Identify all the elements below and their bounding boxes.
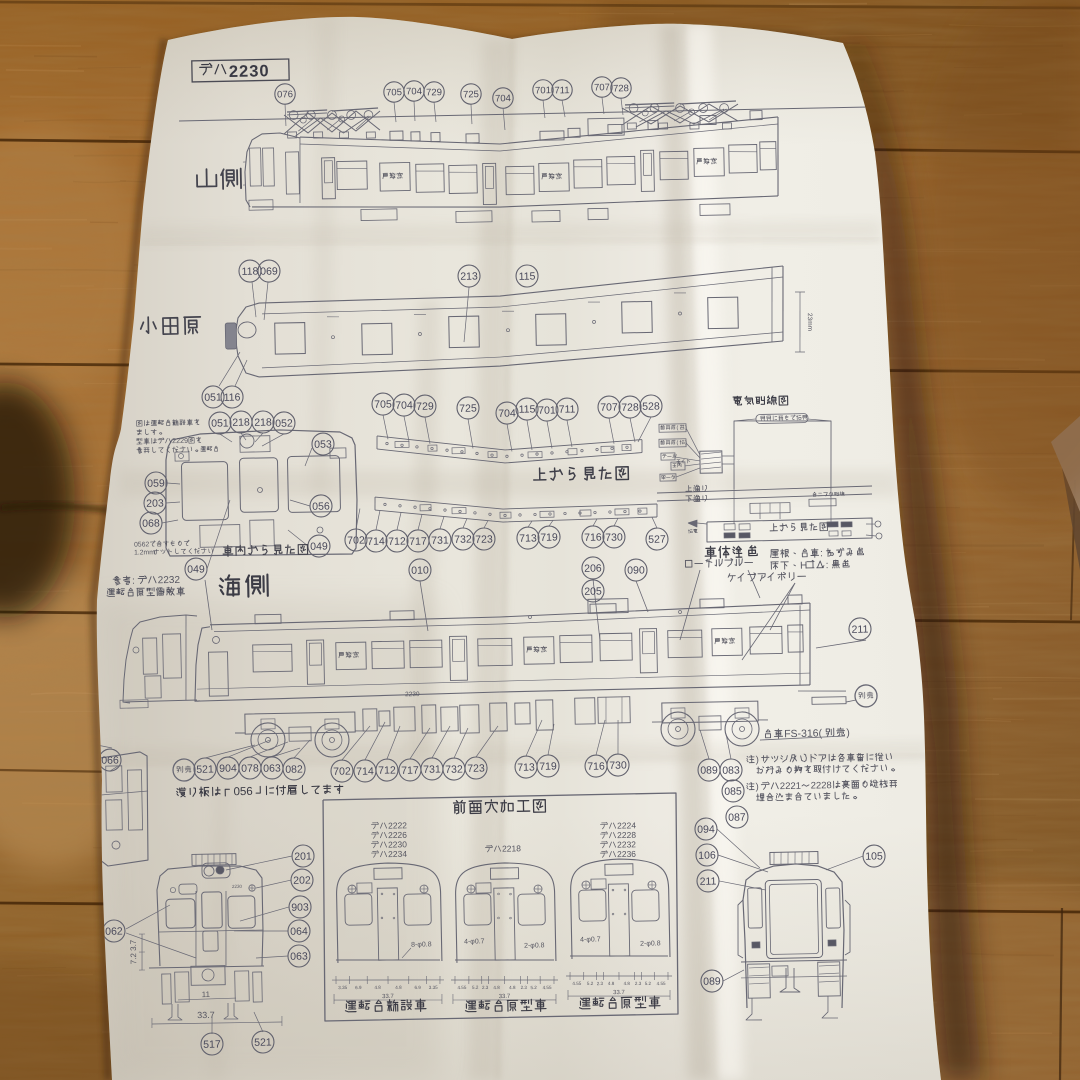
- svg-text:725: 725: [463, 89, 479, 100]
- svg-text:2230: 2230: [232, 884, 243, 889]
- svg-text:33.7: 33.7: [382, 994, 394, 1000]
- svg-text:711: 711: [554, 85, 569, 96]
- svg-text:2230: 2230: [405, 691, 420, 698]
- svg-text:5.2: 5.2: [587, 981, 594, 986]
- svg-text:704: 704: [406, 86, 422, 97]
- svg-text:H: H: [800, 560, 807, 571]
- svg-text:(: (: [676, 440, 678, 446]
- svg-text:2230: 2230: [229, 62, 270, 81]
- svg-text:2236: 2236: [617, 849, 636, 859]
- svg-text:5.2: 5.2: [472, 985, 479, 990]
- svg-text:728: 728: [621, 402, 639, 414]
- svg-text:4.8: 4.8: [624, 981, 631, 986]
- svg-text:2229: 2229: [172, 436, 188, 445]
- svg-text:202: 202: [293, 875, 311, 887]
- svg-text:729: 729: [426, 87, 442, 98]
- svg-text:): ): [846, 727, 850, 739]
- svg-text::: :: [132, 576, 135, 587]
- svg-text:076: 076: [277, 89, 293, 100]
- svg-text:2218: 2218: [502, 843, 521, 853]
- svg-text:211: 211: [700, 876, 717, 888]
- svg-text:2.3: 2.3: [482, 985, 489, 990]
- svg-text:059: 059: [147, 478, 165, 490]
- svg-text:713: 713: [519, 532, 537, 544]
- svg-text:6.9: 6.9: [414, 985, 421, 990]
- svg-text:730: 730: [609, 760, 627, 772]
- svg-text:707: 707: [600, 401, 618, 413]
- svg-text:069: 069: [260, 265, 278, 277]
- svg-text:732: 732: [445, 764, 463, 776]
- svg-text:2228: 2228: [811, 780, 832, 791]
- svg-text:714: 714: [367, 536, 385, 548]
- svg-text:4.55: 4.55: [572, 981, 581, 986]
- svg-text:702: 702: [333, 766, 351, 778]
- svg-text:713: 713: [517, 762, 535, 774]
- svg-text:): ): [755, 782, 758, 793]
- svg-text:201: 201: [294, 851, 312, 863]
- svg-text:2.3: 2.3: [635, 981, 642, 986]
- svg-text:4.8: 4.8: [509, 985, 516, 990]
- svg-text:4.8: 4.8: [493, 985, 500, 990]
- svg-text:4.8: 4.8: [395, 985, 402, 990]
- svg-text:729: 729: [416, 401, 434, 413]
- svg-text:115: 115: [519, 403, 536, 415]
- svg-text:218: 218: [232, 417, 250, 429]
- svg-text:): ): [756, 755, 759, 766]
- svg-text:051: 051: [204, 391, 222, 403]
- svg-text:051: 051: [211, 417, 229, 429]
- svg-text:719: 719: [540, 532, 558, 544]
- svg-text:2.3: 2.3: [597, 981, 604, 986]
- svg-text:064: 064: [290, 926, 308, 938]
- svg-text:213: 213: [460, 270, 478, 282]
- svg-text:094: 094: [697, 824, 715, 836]
- svg-text:903: 903: [291, 901, 309, 913]
- svg-text:527: 527: [648, 534, 666, 546]
- svg-text::: :: [820, 548, 823, 559]
- svg-text:056: 056: [312, 501, 330, 513]
- svg-text:(: (: [676, 425, 678, 431]
- svg-text:23mm: 23mm: [806, 313, 813, 331]
- svg-text:010: 010: [411, 564, 429, 576]
- svg-text:049: 049: [187, 563, 205, 575]
- svg-text:716: 716: [587, 760, 605, 772]
- svg-text:719: 719: [539, 761, 557, 773]
- svg-text:116: 116: [224, 392, 241, 404]
- svg-text:528: 528: [642, 401, 660, 413]
- svg-text:090: 090: [627, 564, 645, 576]
- svg-text:082: 082: [285, 763, 303, 775]
- svg-text:701: 701: [538, 404, 556, 416]
- svg-text:066: 066: [101, 754, 119, 766]
- svg-text:11: 11: [202, 990, 211, 999]
- svg-text:062: 062: [105, 926, 123, 938]
- svg-text:517: 517: [203, 1039, 221, 1051]
- svg-text:521: 521: [196, 764, 214, 776]
- svg-text:211: 211: [852, 623, 869, 635]
- svg-text:33.7: 33.7: [499, 994, 511, 1000]
- svg-text:105: 105: [865, 850, 883, 862]
- svg-text:704: 704: [495, 93, 511, 104]
- svg-text:089: 089: [700, 764, 718, 776]
- svg-text:4.8: 4.8: [374, 985, 381, 990]
- svg-text:731: 731: [431, 534, 449, 546]
- svg-text:705: 705: [374, 398, 392, 410]
- svg-text:115: 115: [519, 271, 536, 283]
- svg-text:6.9: 6.9: [355, 985, 362, 990]
- svg-text:4-φ0.7: 4-φ0.7: [580, 936, 601, 943]
- svg-text:1.2mm: 1.2mm: [134, 549, 155, 556]
- svg-text::: :: [826, 560, 829, 571]
- svg-text:732: 732: [454, 534, 472, 546]
- svg-text:731: 731: [423, 763, 441, 775]
- svg-text:085: 085: [724, 786, 742, 798]
- svg-text:723: 723: [467, 763, 485, 775]
- svg-text:205: 205: [584, 586, 602, 598]
- svg-text:218: 218: [254, 417, 272, 429]
- svg-text:2.3: 2.3: [521, 985, 528, 990]
- svg-text:206: 206: [584, 562, 602, 574]
- svg-text:712: 712: [388, 536, 406, 548]
- svg-text:063: 063: [290, 951, 308, 963]
- svg-text:089: 089: [703, 976, 721, 988]
- svg-text:2234: 2234: [388, 849, 407, 859]
- svg-text:725: 725: [459, 403, 477, 415]
- svg-text:0562: 0562: [134, 541, 149, 548]
- svg-text:2232: 2232: [158, 575, 181, 586]
- svg-text:704: 704: [498, 408, 516, 420]
- svg-text:2221: 2221: [780, 781, 801, 792]
- svg-text:052: 052: [275, 418, 293, 430]
- svg-text:712: 712: [378, 764, 396, 776]
- svg-text:106: 106: [698, 850, 716, 862]
- svg-text:118: 118: [242, 266, 259, 278]
- svg-text:4.55: 4.55: [543, 985, 552, 990]
- svg-text:4.55: 4.55: [657, 981, 666, 986]
- svg-text:717: 717: [409, 536, 427, 548]
- svg-text:053: 053: [314, 439, 332, 451]
- svg-text:711: 711: [559, 403, 576, 415]
- svg-text:705: 705: [386, 87, 402, 98]
- svg-text:8-φ0.8: 8-φ0.8: [411, 941, 432, 948]
- svg-text:904: 904: [219, 762, 237, 774]
- svg-text:5.2: 5.2: [645, 981, 652, 986]
- svg-text:2-φ0.8: 2-φ0.8: [640, 940, 661, 947]
- svg-text:4-φ0.7: 4-φ0.7: [464, 938, 485, 945]
- svg-text:7.2 3.7: 7.2 3.7: [129, 939, 138, 964]
- svg-text:4.55: 4.55: [457, 985, 466, 990]
- svg-text:087: 087: [728, 812, 746, 824]
- svg-text:5.2: 5.2: [530, 985, 537, 990]
- svg-text:203: 203: [146, 498, 164, 510]
- svg-text:068: 068: [142, 518, 160, 530]
- svg-text:717: 717: [401, 765, 419, 777]
- svg-text:33.7: 33.7: [613, 990, 625, 996]
- svg-text:049: 049: [310, 541, 328, 553]
- svg-text:728: 728: [613, 83, 629, 94]
- svg-text:704: 704: [395, 399, 413, 411]
- svg-text:083: 083: [722, 765, 740, 777]
- svg-text:716: 716: [584, 531, 602, 543]
- svg-text:063: 063: [263, 763, 281, 775]
- svg-text:701: 701: [535, 85, 551, 96]
- svg-text:056: 056: [233, 786, 252, 798]
- svg-text:2-φ0.8: 2-φ0.8: [524, 942, 545, 949]
- svg-text:521: 521: [254, 1037, 272, 1049]
- svg-text:078: 078: [241, 763, 259, 775]
- svg-text:723: 723: [475, 534, 493, 546]
- svg-text:4.8: 4.8: [608, 981, 615, 986]
- svg-text:730: 730: [605, 531, 623, 543]
- svg-text:707: 707: [594, 82, 610, 93]
- svg-text:714: 714: [356, 765, 374, 777]
- svg-text:3.35: 3.35: [429, 985, 438, 990]
- svg-text:3.35: 3.35: [338, 985, 347, 990]
